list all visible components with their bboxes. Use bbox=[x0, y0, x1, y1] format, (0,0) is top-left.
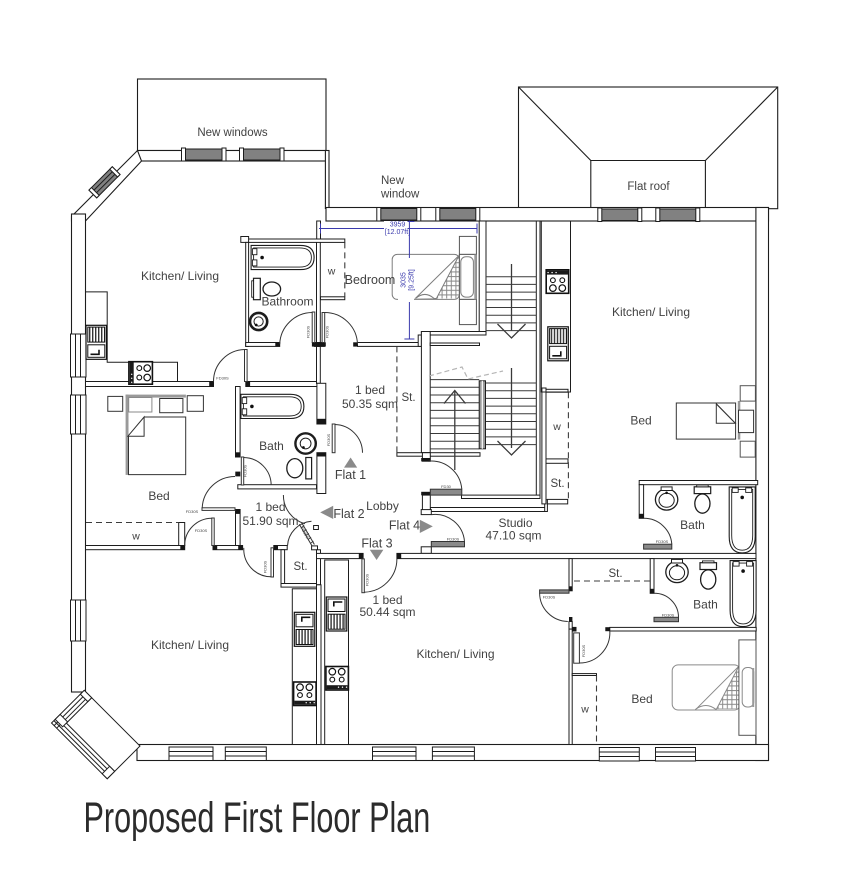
svg-text:FD30S: FD30S bbox=[243, 464, 248, 477]
svg-text:w: w bbox=[131, 531, 140, 543]
svg-text:w: w bbox=[552, 421, 561, 433]
svg-text:Kitchen/ Living: Kitchen/ Living bbox=[612, 305, 690, 319]
svg-text:FD30S: FD30S bbox=[326, 433, 331, 446]
svg-text:FD30S: FD30S bbox=[581, 644, 586, 657]
svg-text:Bedroom: Bedroom bbox=[345, 273, 396, 287]
svg-text:Flat 2: Flat 2 bbox=[333, 507, 364, 521]
svg-text:Lobby: Lobby bbox=[366, 499, 399, 513]
svg-text:Kitchen/ Living: Kitchen/ Living bbox=[151, 638, 229, 652]
svg-text:window: window bbox=[380, 189, 420, 201]
svg-text:Bath: Bath bbox=[259, 439, 284, 453]
svg-text:50.44 sqm: 50.44 sqm bbox=[359, 605, 415, 619]
svg-text:51.90 sqm: 51.90 sqm bbox=[242, 514, 298, 528]
svg-text:w: w bbox=[327, 266, 336, 278]
svg-text:FD30S: FD30S bbox=[216, 376, 229, 381]
svg-text:Bath: Bath bbox=[680, 518, 705, 532]
svg-text:St.: St. bbox=[550, 478, 564, 490]
svg-text:47.10 sqm: 47.10 sqm bbox=[485, 529, 541, 543]
svg-text:FD30S: FD30S bbox=[263, 560, 268, 573]
svg-text:1 bed: 1 bed bbox=[355, 383, 385, 397]
svg-text:FD30S: FD30S bbox=[543, 595, 556, 600]
svg-text:3035: 3035 bbox=[401, 272, 408, 288]
svg-text:St.: St. bbox=[608, 568, 622, 580]
svg-text:Flat 1: Flat 1 bbox=[335, 468, 366, 482]
svg-text:FD30S: FD30S bbox=[364, 573, 369, 586]
svg-text:New windows: New windows bbox=[197, 127, 268, 139]
svg-text:Kitchen/ Living: Kitchen/ Living bbox=[141, 269, 219, 283]
svg-text:New: New bbox=[381, 175, 405, 187]
svg-text:Bathroom: Bathroom bbox=[261, 295, 313, 309]
svg-text:FD30S: FD30S bbox=[186, 509, 199, 514]
svg-text:Flat 4: Flat 4 bbox=[389, 519, 420, 533]
svg-text:3959: 3959 bbox=[390, 222, 406, 229]
svg-text:FD30S: FD30S bbox=[325, 325, 330, 338]
svg-text:Bed: Bed bbox=[630, 414, 651, 428]
svg-text:Flat 3: Flat 3 bbox=[361, 537, 392, 551]
svg-text:FD30S: FD30S bbox=[662, 612, 675, 617]
svg-text:Bed: Bed bbox=[631, 692, 652, 706]
svg-text:[12.07ft]: [12.07ft] bbox=[385, 229, 410, 236]
svg-text:FD30S: FD30S bbox=[195, 528, 208, 533]
svg-text:Kitchen/ Living: Kitchen/ Living bbox=[416, 647, 494, 661]
svg-text:1 bed: 1 bed bbox=[255, 500, 285, 514]
svg-text:Bath: Bath bbox=[693, 598, 718, 612]
svg-text:Proposed First Floor Plan: Proposed First Floor Plan bbox=[84, 793, 431, 841]
svg-text:FD30: FD30 bbox=[441, 484, 452, 489]
svg-text:St.: St. bbox=[401, 392, 415, 404]
svg-text:[9.25ft]: [9.25ft] bbox=[409, 269, 416, 290]
svg-text:FD30S: FD30S bbox=[306, 325, 311, 338]
svg-text:w: w bbox=[580, 704, 589, 716]
svg-text:Bed: Bed bbox=[148, 489, 169, 503]
svg-text:FD30S: FD30S bbox=[447, 537, 460, 542]
svg-text:St.: St. bbox=[293, 561, 307, 573]
svg-text:FD30S: FD30S bbox=[656, 539, 669, 544]
svg-text:Flat roof: Flat roof bbox=[627, 181, 670, 193]
svg-text:50.35 sqm: 50.35 sqm bbox=[342, 397, 398, 411]
